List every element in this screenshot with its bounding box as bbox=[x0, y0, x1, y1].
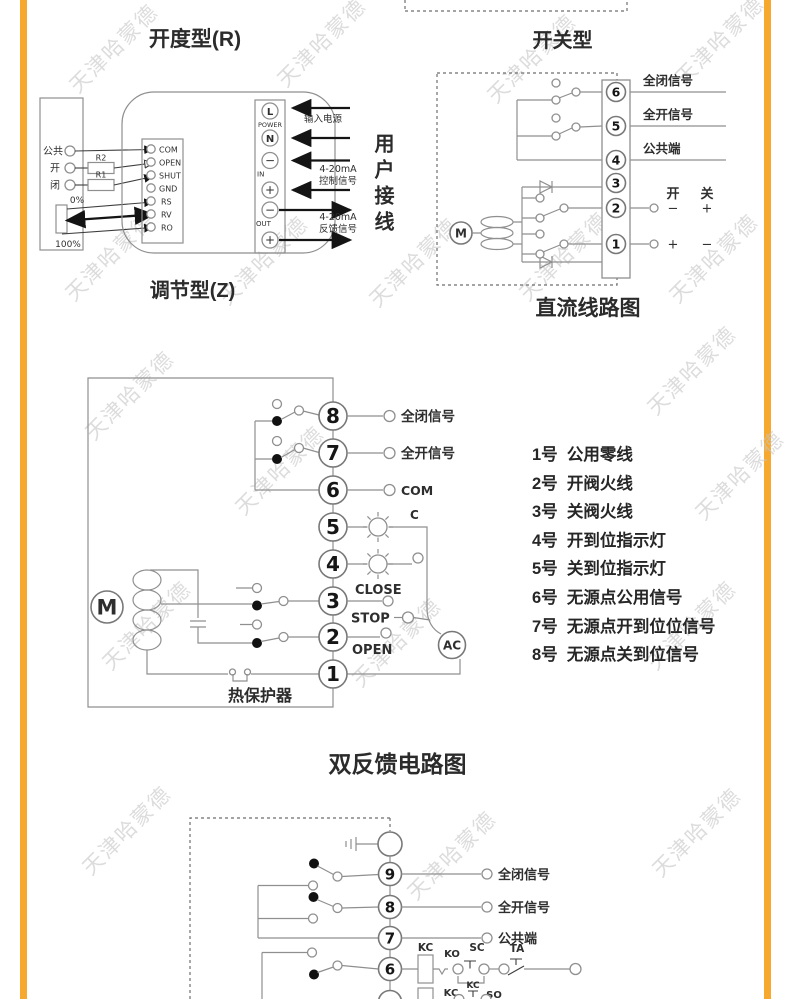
board-terminal-gnd: GND bbox=[159, 185, 177, 194]
kc2-relay-coil-partial bbox=[418, 988, 433, 999]
t2-minus: − bbox=[668, 202, 679, 217]
b-terminal-5-partial bbox=[379, 991, 402, 999]
legend-line-3: 3号 关阀火线 bbox=[532, 498, 715, 527]
t1-minus: − bbox=[702, 238, 713, 253]
open-signal-label: 全开信号 bbox=[642, 107, 693, 122]
dc-terminal-2: 2 bbox=[612, 201, 621, 216]
ground-symbol bbox=[346, 837, 378, 851]
limit-switches bbox=[252, 400, 319, 649]
motor-label: M bbox=[455, 227, 467, 241]
close-label: CLOSE bbox=[355, 583, 402, 598]
r2-label: R2 bbox=[96, 154, 107, 163]
diagram-switch-type: M 6 bbox=[400, 0, 770, 320]
page: 天津哈蒙德天津哈蒙德天津哈蒙德天津哈蒙德天津哈蒙德天津哈蒙德天津哈蒙德天津哈蒙德… bbox=[0, 0, 790, 999]
motor-label: M bbox=[97, 596, 118, 620]
terminal-legend: 1号 公用零线 2号 开阀火线 3号 关阀火线 4号 开到位指示灯 5号 关到位… bbox=[532, 441, 715, 670]
terminal-out-minus: − bbox=[265, 203, 275, 217]
caption-regulating-type: 调节型(Z) bbox=[110, 274, 275, 303]
watermark-text: 天津哈蒙德 bbox=[640, 319, 743, 422]
board-terminal-com: COM bbox=[159, 146, 178, 155]
potentiometer bbox=[56, 205, 67, 233]
input-power-label: 输入电源 bbox=[304, 113, 343, 125]
ctrl-signal-label: 控制信号 bbox=[319, 175, 357, 187]
top-partial-dashed-box bbox=[405, 0, 627, 11]
power-label: POWER bbox=[258, 121, 283, 129]
dc-terminal-strip: 6 5 4 3 2 1 bbox=[602, 80, 630, 278]
board-terminal-open: OPEN bbox=[159, 159, 181, 168]
left-switches bbox=[258, 859, 379, 999]
kc-relay-coil bbox=[418, 955, 433, 983]
close-label: 闭 bbox=[50, 179, 60, 192]
ac-label: AC bbox=[443, 639, 461, 653]
feedback-signal-label: 反馈信号 bbox=[319, 223, 357, 235]
t2-plus: + bbox=[702, 202, 713, 217]
feedback-signal-ma: 4-20mA bbox=[319, 212, 357, 223]
legend-line-8: 8号 无源点关到位信号 bbox=[532, 641, 715, 670]
motor-section: M bbox=[91, 570, 319, 681]
fb-terminal-7: 7 bbox=[326, 441, 340, 465]
open-signal-label: 全开信号 bbox=[497, 900, 550, 916]
fb-terminal-6: 6 bbox=[326, 478, 340, 502]
sc-label: SC bbox=[469, 942, 485, 954]
open-label: 开 bbox=[50, 164, 60, 175]
c-lamp-label: C bbox=[410, 508, 419, 522]
output-side: 全闭信号 全开信号 COM C CLOSE STOP AC bbox=[347, 408, 466, 659]
terminal-l: L bbox=[267, 107, 274, 118]
common-terminal-label: 公共端 bbox=[643, 141, 681, 156]
close-column-header: 关 bbox=[700, 186, 713, 202]
actuator-dashed-box bbox=[437, 73, 617, 285]
legend-line-7: 7号 无源点开到位位信号 bbox=[532, 613, 715, 642]
output-side: 全闭信号 全开信号 公共端 KC KO SC TA KC KC SO bbox=[402, 867, 582, 999]
fb-terminal-1: 1 bbox=[326, 662, 340, 686]
sc-contact-symbol bbox=[464, 961, 476, 969]
legend-line-4: 4号 开到位指示灯 bbox=[532, 527, 715, 556]
out-label: OUT bbox=[256, 220, 272, 228]
diagram-bottom-partial: 9 8 7 6 全闭信号 全开信号 公共端 KC KO SC T bbox=[150, 795, 620, 999]
open-signal-label: 全开信号 bbox=[400, 445, 455, 462]
b-terminal-6: 6 bbox=[385, 961, 395, 979]
left-orange-border bbox=[20, 0, 27, 999]
terminal-n: N bbox=[266, 134, 274, 145]
terminal-in-minus: − bbox=[265, 154, 275, 168]
resistor-r1 bbox=[88, 180, 114, 191]
closed-signal-label: 全闭信号 bbox=[642, 73, 693, 88]
capacitor bbox=[190, 621, 206, 627]
motor-and-switches: M bbox=[450, 79, 602, 268]
legend-line-6: 6号 无源点公用信号 bbox=[532, 584, 715, 613]
closed-signal-label: 全闭信号 bbox=[400, 408, 455, 425]
common-label: 公共 bbox=[43, 146, 63, 158]
fb-terminal-4: 4 bbox=[326, 552, 340, 576]
in-label: IN bbox=[257, 171, 264, 179]
legend-line-5: 5号 关到位指示灯 bbox=[532, 555, 715, 584]
watermark-text: 天津哈蒙德 bbox=[645, 781, 748, 884]
wiring-arrows: R2 R1 bbox=[62, 150, 153, 235]
b-terminal-7: 7 bbox=[385, 930, 395, 948]
board-terminal-rs: RS bbox=[161, 198, 172, 207]
legend-line-1: 1号 公用零线 bbox=[532, 441, 715, 470]
t1-plus: + bbox=[668, 238, 679, 253]
fb-terminal-8: 8 bbox=[326, 404, 340, 428]
title-opening-type: 开度型(R) bbox=[110, 23, 280, 53]
legend-line-2: 2号 开阀火线 bbox=[532, 470, 715, 499]
dc-terminal-1: 1 bbox=[612, 237, 621, 252]
r1-label: R1 bbox=[96, 171, 107, 180]
board-terminal-shut: SHUT bbox=[159, 172, 181, 181]
closed-signal-label: 全闭信号 bbox=[497, 867, 550, 883]
dc-terminal-4: 4 bbox=[612, 153, 621, 168]
dc-signal-lines: 全闭信号 全开信号 公共端 开 关 − + + − bbox=[630, 73, 726, 253]
fb-terminal-2: 2 bbox=[326, 625, 340, 649]
board-terminal-rv: RV bbox=[161, 211, 172, 220]
open-sw-label: OPEN bbox=[352, 643, 392, 658]
enclosure-wires bbox=[88, 378, 460, 707]
diagram-double-feedback: M bbox=[60, 370, 480, 710]
caption-double-feedback: 双反馈电路图 bbox=[315, 745, 480, 779]
ta-contact-symbol bbox=[508, 959, 524, 975]
fb-terminal-5: 5 bbox=[326, 515, 340, 539]
dc-terminal-6: 6 bbox=[612, 85, 621, 100]
b-terminal-8: 8 bbox=[385, 899, 395, 917]
ta-label: TA bbox=[510, 943, 525, 955]
board-terminal-ro: RO bbox=[161, 224, 173, 233]
ko-label: KO bbox=[444, 949, 460, 960]
user-connection-arrows: 输入电源 4-20mA 控制信号 4-20mA 反馈信号 bbox=[279, 108, 357, 240]
pot-0-label: 0% bbox=[70, 196, 85, 206]
watermark-text: 天津哈蒙德 bbox=[270, 0, 373, 93]
bottom-dashed-box bbox=[190, 818, 390, 999]
thermal-protector-symbol bbox=[233, 674, 247, 681]
left-terminal-box: 公共 开 闭 0% 100% bbox=[40, 98, 85, 250]
ctrl-signal-ma: 4-20mA bbox=[319, 164, 357, 175]
diagram-regulating-type: 公共 开 闭 0% 100% R2 R1 COM OPEN SHUT bbox=[30, 85, 400, 263]
open-column-header: 开 bbox=[666, 187, 679, 202]
stop-label: STOP bbox=[351, 612, 390, 627]
pot-100-label: 100% bbox=[55, 240, 81, 250]
power-terminal-strip: L POWER N − IN + − OUT + bbox=[255, 100, 285, 253]
terminal-in-plus: + bbox=[265, 183, 275, 197]
thermal-protector-label: 热保护器 bbox=[200, 682, 320, 706]
b-terminal-9: 9 bbox=[385, 866, 395, 884]
kc-label: KC bbox=[418, 942, 434, 954]
terminal-out-plus: + bbox=[265, 233, 275, 247]
ground-terminal bbox=[378, 832, 402, 856]
kc3-contact-symbol bbox=[468, 991, 478, 997]
kc3-label: KC bbox=[466, 981, 480, 991]
fb-terminal-3: 3 bbox=[326, 589, 340, 613]
dc-terminal-3: 3 bbox=[612, 176, 621, 191]
dc-terminal-5: 5 bbox=[612, 119, 621, 134]
com-label: COM bbox=[401, 483, 433, 498]
terminal-column: 9 8 7 6 bbox=[379, 863, 402, 999]
